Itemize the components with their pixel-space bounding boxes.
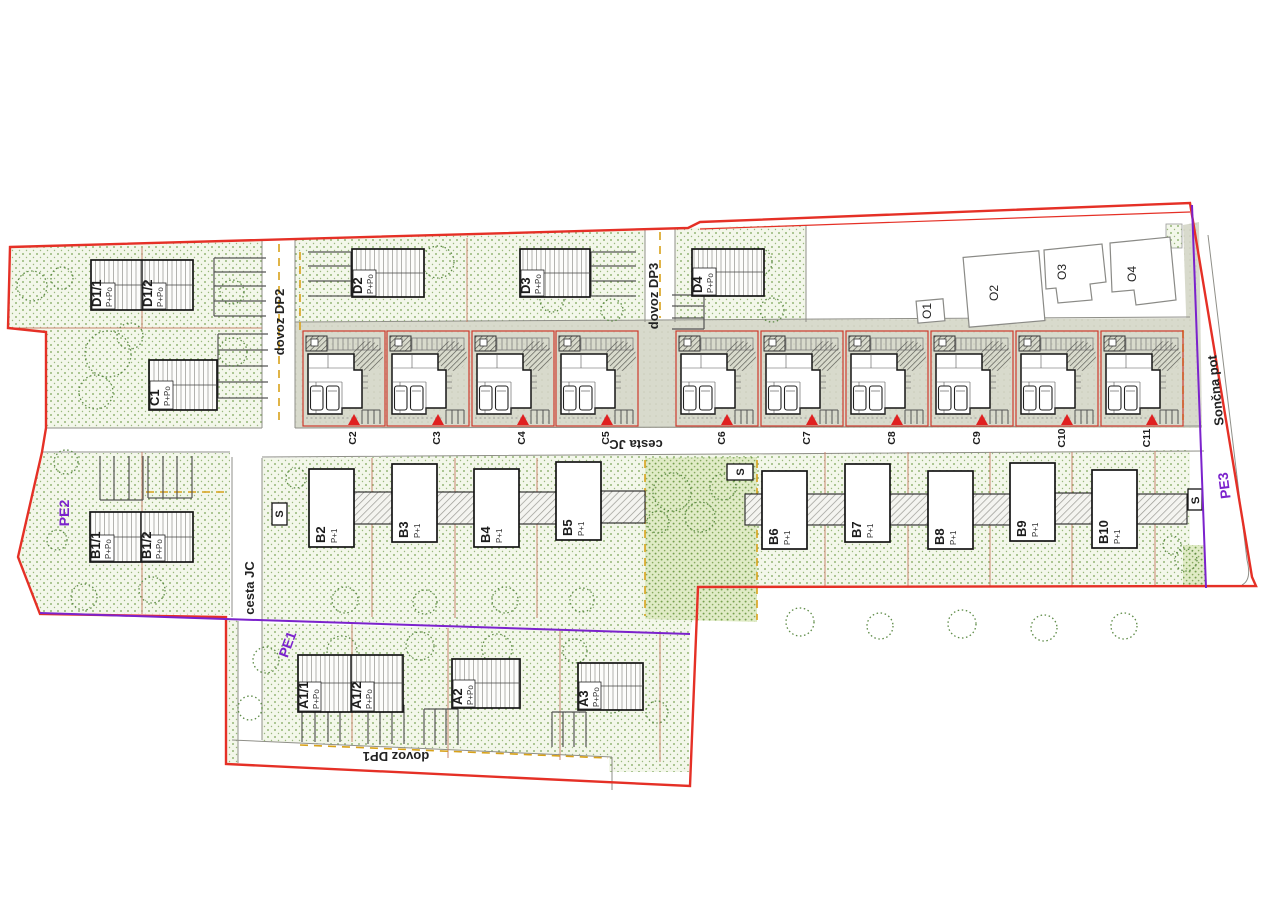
plot-c10-label: C10 [1056,428,1068,447]
building-b4-label: B4 [478,526,493,543]
building-b7-label: B7 [849,521,864,538]
building-b9-storeys: P+1 [1031,522,1040,537]
plot-c3-label: C3 [431,431,443,445]
building-b8-storeys: P+1 [949,530,958,545]
zone-pe3-label: PE3 [1214,471,1233,499]
building-o2 [963,251,1045,327]
building-a2-storeys: P+Po [466,685,475,705]
building-b9-label: B9 [1014,520,1029,537]
road-cesta-jc-label: cesta JC [609,437,663,452]
s-marker-label: S [274,510,286,517]
building-d4-storeys: P+Po [706,273,715,293]
s-marker-label: S [735,468,747,475]
building-b6-storeys: P+1 [783,530,792,545]
plot-c9-label: C9 [971,431,983,445]
road-dovoz-dp2-label: dovoz DP2 [272,289,287,355]
building-b2-storeys: P+1 [330,528,339,543]
building-b1-1-storeys: P+Po [104,539,113,559]
road-dovoz-dp1-label: dovoz DP1 [363,749,429,764]
building-c1-label: C1 [147,389,162,406]
building-d1-2-storeys: P+Po [156,287,165,307]
site-plan-drawing: D1/1 P+Po D1/2 P+Po C1 P+Po D2 P+Po D3 P… [0,0,1280,906]
building-b10-storeys: P+1 [1113,529,1122,544]
building-b3-storeys: P+1 [413,523,422,538]
building-b4-storeys: P+1 [495,528,504,543]
building-b8-label: B8 [932,528,947,545]
plot-c6-label: C6 [716,431,728,445]
building-d1-1-label: D1/1 [89,280,104,307]
building-o2-label: O2 [987,285,1001,301]
building-o1-label: O1 [920,303,934,319]
road-cesta-jc-vertical-label: cesta JC [242,561,257,615]
building-b10-label: B10 [1096,520,1111,544]
plot-c8-label: C8 [886,431,898,445]
building-d2-label: D2 [350,277,365,294]
building-d4-label: D4 [690,276,705,293]
site-plan: D1/1 P+Po D1/2 P+Po C1 P+Po D2 P+Po D3 P… [0,0,1280,906]
building-b5-label: B5 [560,519,575,536]
plot-c7-label: C7 [801,431,813,445]
building-d1-2-label: D1/2 [140,280,155,307]
building-b3-label: B3 [396,521,411,538]
road-dovoz-dp3-label: dovoz DP3 [646,263,661,329]
building-b6-label: B6 [766,528,781,545]
building-a1-2-storeys: P+Po [365,689,374,709]
building-a1-1-label: A1/1 [296,682,311,709]
building-a3-storeys: P+Po [592,687,601,707]
building-a3-label: A3 [576,690,591,707]
building-d2-storeys: P+Po [366,274,375,294]
building-b7-storeys: P+1 [866,523,875,538]
building-o4-label: O4 [1125,266,1139,282]
building-o4 [1110,237,1176,305]
inner-red-line [700,212,1190,229]
s-marker-label: S [1190,496,1203,505]
building-o3 [1044,244,1106,303]
building-b1-2-label: B1/2 [139,532,154,559]
plot-c4-label: C4 [516,431,528,445]
building-d1-1-storeys: P+Po [105,287,114,307]
zone-pe2-label: PE2 [56,500,72,527]
building-b2-label: B2 [313,526,328,543]
building-b1-2-storeys: P+Po [155,539,164,559]
plot-c2-label: C2 [347,431,359,445]
plot-c11-label: C11 [1141,429,1153,448]
building-b5-storeys: P+1 [577,521,586,536]
building-a1-1-storeys: P+Po [312,689,321,709]
building-a2-label: A2 [450,688,465,705]
building-c1-storeys: P+Po [163,386,172,406]
building-b1-1-label: B1/1 [88,532,103,559]
building-d3-label: D3 [518,277,533,294]
building-a1-2-label: A1/2 [349,682,364,709]
building-d3-storeys: P+Po [534,274,543,294]
building-o3-label: O3 [1055,264,1069,280]
